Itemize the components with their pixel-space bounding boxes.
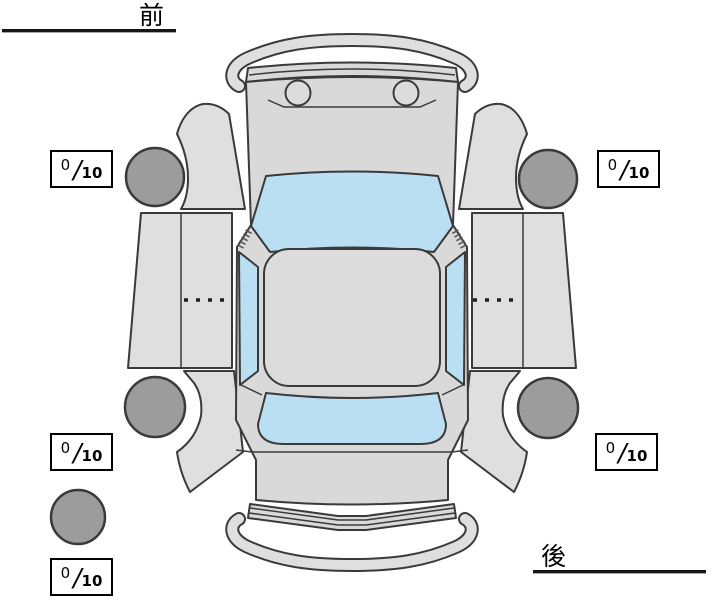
tire-rear-left [125, 377, 185, 437]
tire-rear-right [518, 378, 578, 438]
score-denominator: 10 [82, 572, 103, 590]
score-value: 0 [61, 156, 71, 174]
left-washer-circle [286, 81, 311, 106]
rear-window [258, 393, 446, 444]
rear-right-door-flap [461, 371, 527, 492]
score-value: 0 [606, 439, 616, 457]
spare-tire [51, 490, 105, 544]
score-value: 0 [608, 156, 618, 174]
car-top-view-diagram [0, 0, 711, 600]
front-left-door-flap [177, 104, 245, 209]
windshield [251, 172, 453, 253]
rear-left-door-flap [177, 371, 243, 492]
score-denominator: 10 [629, 164, 650, 182]
rear-label: 後 [541, 544, 566, 569]
tread-score-rear-right: 0/10 [595, 433, 658, 471]
right-side-window [446, 252, 465, 385]
left-side-window [239, 252, 258, 385]
front-right-door-flap [459, 104, 527, 209]
tread-score-spare: 0/10 [50, 558, 113, 596]
right-side-panel [472, 213, 576, 368]
score-denominator: 10 [82, 447, 103, 465]
vehicle-condition-diagram: 前 後 0/10 0/10 0/10 0/10 0/10 [0, 0, 711, 600]
tire-front-right [519, 150, 577, 208]
score-denominator: 10 [627, 447, 648, 465]
tire-front-left [126, 148, 184, 206]
score-denominator: 10 [82, 164, 103, 182]
rear-underline [533, 570, 706, 574]
score-value: 0 [61, 439, 71, 457]
tread-score-rear-left: 0/10 [50, 433, 113, 471]
front-label: 前 [139, 3, 164, 28]
right-washer-circle [394, 81, 419, 106]
tread-score-front-left: 0/10 [50, 150, 113, 188]
front-underline [2, 29, 176, 33]
roof-panel [264, 249, 440, 386]
score-value: 0 [61, 564, 71, 582]
tread-score-front-right: 0/10 [597, 150, 660, 188]
left-side-panel [128, 213, 232, 368]
